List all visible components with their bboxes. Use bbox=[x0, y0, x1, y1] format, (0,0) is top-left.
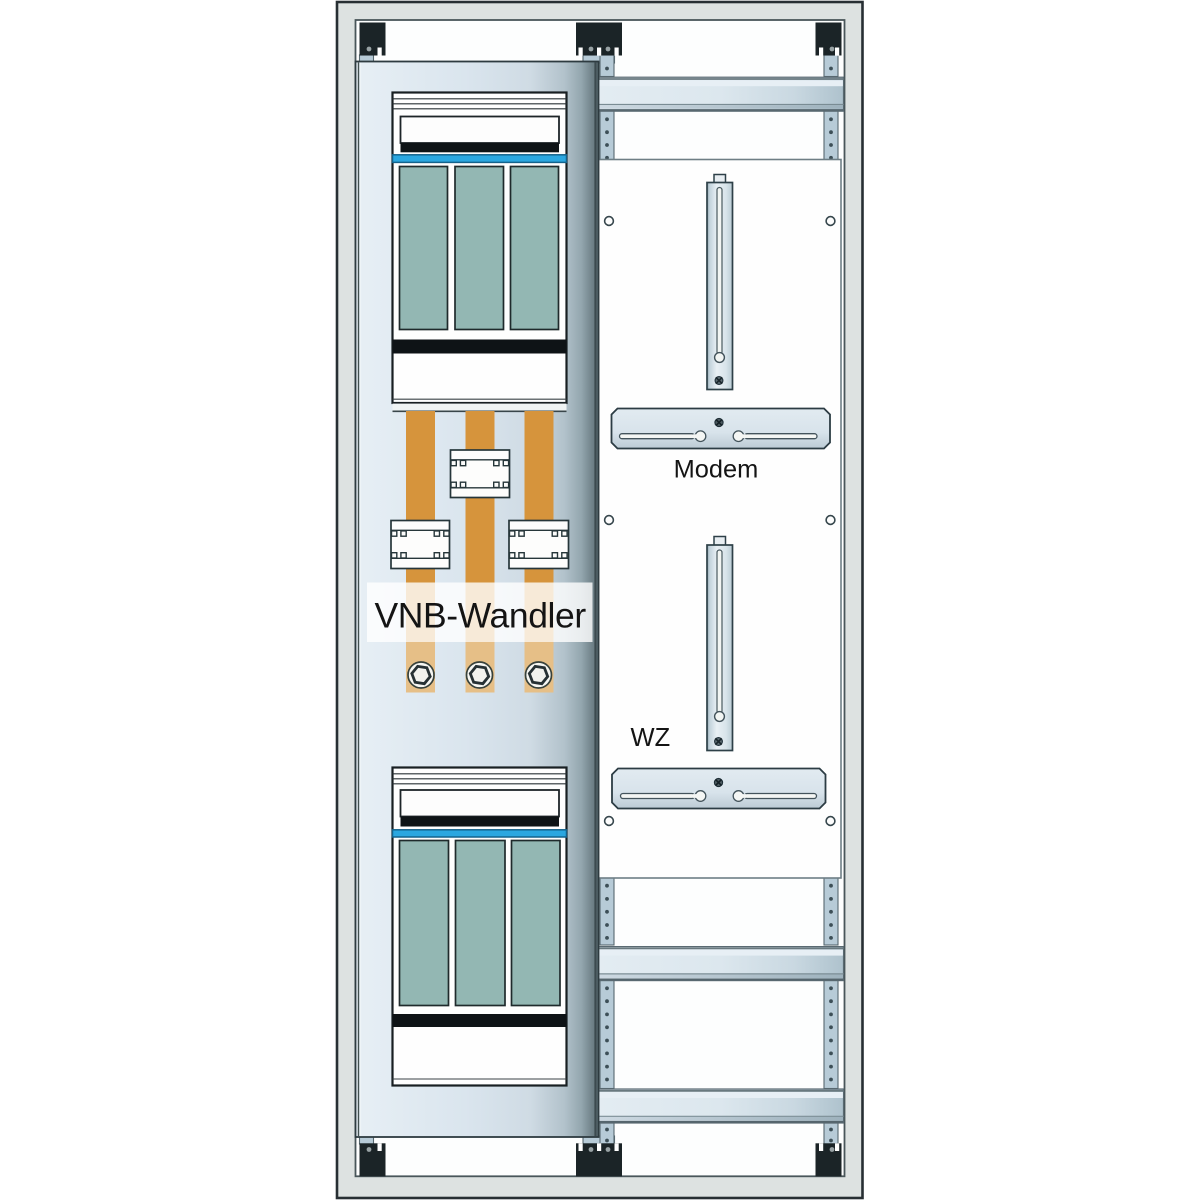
svg-text:Modem: Modem bbox=[674, 456, 759, 484]
svg-text:WZ: WZ bbox=[631, 724, 671, 752]
svg-text:VNB-Wandler: VNB-Wandler bbox=[375, 596, 587, 636]
